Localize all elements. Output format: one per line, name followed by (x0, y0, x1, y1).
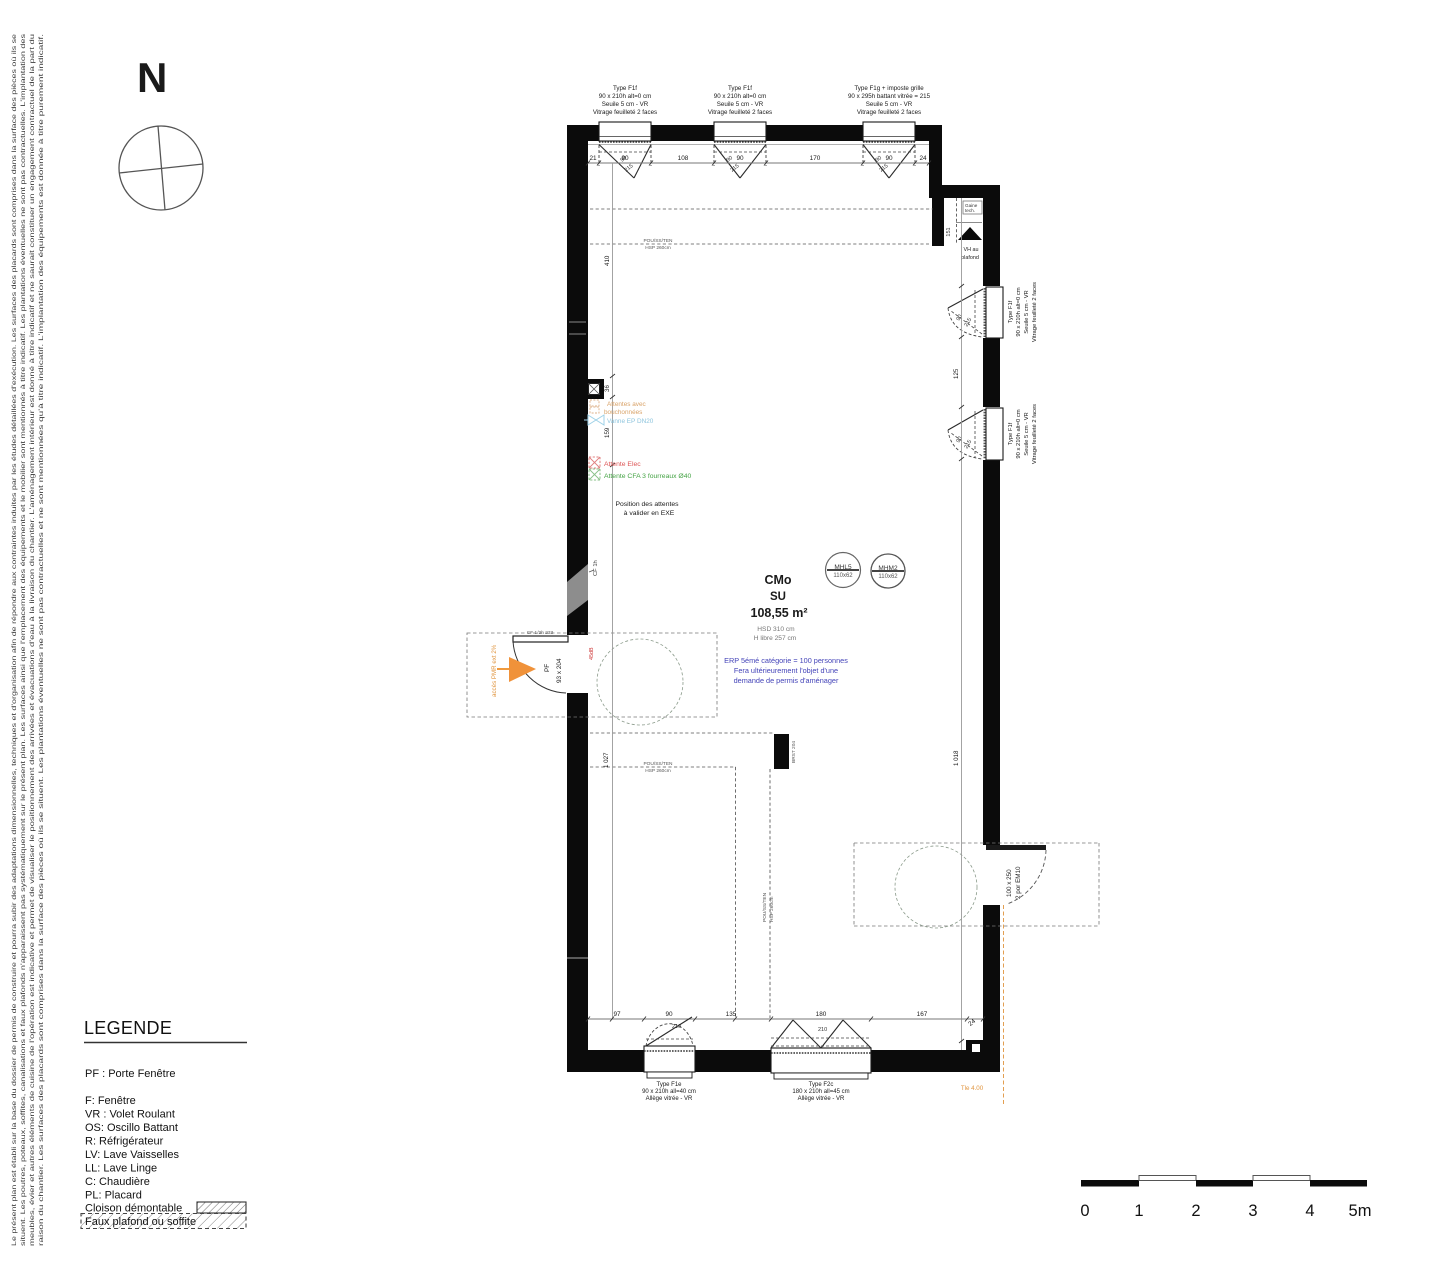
svg-text:90 x 210h alt=0 cm: 90 x 210h alt=0 cm (1016, 409, 1022, 458)
svg-text:90 x 210h all=40 cm: 90 x 210h all=40 cm (642, 1089, 696, 1095)
svg-text:Type F1e: Type F1e (656, 1082, 682, 1088)
svg-text:Seuile 5 cm - VR: Seuile 5 cm - VR (866, 101, 913, 108)
svg-text:151: 151 (946, 227, 952, 236)
svg-text:Vitrage feuilleté 2 faces: Vitrage feuilleté 2 faces (1032, 282, 1038, 342)
svg-text:3: 3 (1248, 1202, 1257, 1220)
svg-text:1 018: 1 018 (953, 750, 960, 766)
svg-text:Type F1f: Type F1f (1008, 300, 1014, 323)
svg-text:Seuile 5 cm - VR: Seuile 5 cm - VR (1024, 412, 1030, 456)
svg-text:VR : Volet Roulant: VR : Volet Roulant (85, 1109, 175, 1121)
svg-text:LV: Lave Vaisselles: LV: Lave Vaisselles (85, 1149, 179, 1161)
svg-text:45dB: 45dB (589, 647, 595, 660)
svg-text:Seuile 5 cm - VR: Seuile 5 cm - VR (602, 101, 649, 108)
svg-text:N: N (137, 54, 167, 101)
svg-text:90 x 210h alt=0 cm: 90 x 210h alt=0 cm (714, 93, 766, 100)
svg-text:Le présent plan est établi sur: Le présent plan est établi sur la base d… (11, 33, 18, 1246)
svg-text:Seuile 5 cm - VR: Seuile 5 cm - VR (1024, 290, 1030, 334)
svg-text:Vitrage feuilleté 2 faces: Vitrage feuilleté 2 faces (857, 109, 921, 116)
svg-text:R: Réfrigérateur: R: Réfrigérateur (85, 1136, 164, 1148)
svg-text:90: 90 (885, 155, 893, 162)
svg-text:4: 4 (1305, 1202, 1314, 1220)
svg-text:demande de permis d'aménager: demande de permis d'aménager (734, 676, 839, 685)
svg-text:2: 2 (1191, 1202, 1200, 1220)
svg-text:100 x 250: 100 x 250 (1006, 869, 1013, 897)
svg-text:PF: PF (544, 664, 551, 672)
svg-text:1: 1 (1134, 1202, 1143, 1220)
svg-text:Position des attentes: Position des attentes (615, 501, 679, 508)
svg-text:CMo: CMo (764, 573, 791, 587)
svg-text:Allège vitrée - VR: Allège vitrée - VR (798, 1096, 845, 1102)
svg-text:Cloison démontable: Cloison démontable (85, 1203, 182, 1215)
svg-text:LL: Lave Linge: LL: Lave Linge (85, 1163, 157, 1175)
svg-text:Fera ultérieurement l'objet d': Fera ultérieurement l'objet d'une (734, 666, 838, 675)
svg-text:plafond: plafond (961, 255, 979, 261)
svg-text:Type F1f: Type F1f (1008, 422, 1014, 445)
svg-text:raison du chantier. Les surfac: raison du chantier. Les surfaces des pla… (38, 34, 45, 1246)
svg-text:Vitrage feuilleté 2 faces: Vitrage feuilleté 2 faces (593, 109, 657, 116)
svg-text:Vanne EP DN20: Vanne EP DN20 (607, 418, 654, 425)
svg-text:Allège vitrée - VR: Allège vitrée - VR (646, 1096, 693, 1102)
svg-text:accès PMR ext 2%: accès PMR ext 2% (491, 644, 498, 697)
svg-text:LEGENDE: LEGENDE (84, 1018, 172, 1038)
svg-text:meubles, évier et autres éléme: meubles, évier et autres éléments de cui… (29, 33, 36, 1246)
svg-text:POU/SS/TEN: POU/SS/TEN (643, 238, 673, 244)
svg-text:108,55 m²: 108,55 m² (751, 606, 808, 620)
svg-text:90: 90 (665, 1011, 673, 1018)
svg-text:Attente Elec: Attente Elec (604, 461, 641, 468)
svg-text:H libre 257 cm: H libre 257 cm (754, 635, 797, 642)
svg-text:F: Fenêtre: F: Fenêtre (85, 1095, 136, 1107)
svg-text:CF 1h: CF 1h (593, 560, 599, 576)
svg-text:ERP 5émé catégorie = 100 perso: ERP 5émé catégorie = 100 personnes (724, 656, 848, 665)
svg-text:159: 159 (604, 427, 611, 438)
svg-text:HSP 260cm: HSP 260cm (645, 768, 671, 774)
svg-text:410: 410 (604, 255, 611, 266)
svg-text:Seuile 5 cm - VR: Seuile 5 cm - VR (717, 101, 764, 108)
svg-text:90: 90 (621, 155, 629, 162)
svg-text:24: 24 (919, 155, 927, 162)
svg-text:90 x 210h alt=0 cm: 90 x 210h alt=0 cm (599, 93, 651, 100)
svg-text:Vitrage feuilleté 2 faces: Vitrage feuilleté 2 faces (708, 109, 772, 116)
svg-text:SU: SU (770, 591, 786, 603)
svg-text:90 x 295h battant vitrée = 215: 90 x 295h battant vitrée = 215 (848, 93, 931, 100)
svg-text:0: 0 (1080, 1202, 1089, 1220)
svg-text:135: 135 (726, 1011, 737, 1018)
svg-text:POU/SS/TEN: POU/SS/TEN (762, 892, 768, 922)
svg-text:36: 36 (604, 385, 611, 392)
svg-text:OS: Oscillo Battant: OS: Oscillo Battant (85, 1122, 178, 1134)
svg-text:Faux plafond ou soffite: Faux plafond ou soffite (85, 1216, 196, 1228)
svg-text:1 027: 1 027 (603, 752, 610, 768)
svg-text:tech.: tech. (965, 208, 975, 213)
svg-text:5m: 5m (1349, 1202, 1372, 1220)
svg-text:HSD 310 cm: HSD 310 cm (757, 626, 795, 633)
svg-text:110x62: 110x62 (833, 573, 853, 579)
svg-text:bouchonnées: bouchonnées (604, 409, 642, 416)
svg-text:167: 167 (917, 1011, 928, 1018)
svg-text:180: 180 (816, 1011, 827, 1018)
svg-text:Type F2c: Type F2c (809, 1082, 834, 1088)
svg-text:170: 170 (810, 155, 821, 162)
svg-text:situent. Les poutres, poteaux,: situent. Les poutres, poteaux, soffites,… (20, 34, 27, 1246)
svg-text:108: 108 (678, 155, 689, 162)
svg-text:Attente CFA 3 fourreaux Ø40: Attente CFA 3 fourreaux Ø40 (604, 473, 691, 480)
svg-text:Tle 4.00: Tle 4.00 (961, 1085, 984, 1092)
svg-text:210: 210 (818, 1027, 827, 1033)
svg-text:Attentes avec: Attentes avec (607, 401, 647, 408)
svg-text:HSP 260cm: HSP 260cm (769, 896, 775, 922)
svg-text:Type F1f: Type F1f (728, 85, 752, 92)
svg-text:C: Chaudière: C: Chaudière (85, 1176, 150, 1188)
svg-text:HSP 260cm: HSP 260cm (645, 245, 671, 251)
svg-text:Vitrage feuilleté 2 faces: Vitrage feuilleté 2 faces (1032, 404, 1038, 464)
svg-text:Type F1f: Type F1f (613, 85, 637, 92)
svg-text:97: 97 (613, 1011, 621, 1018)
svg-text:110x62: 110x62 (878, 574, 898, 580)
svg-text:PF : Porte Fenêtre: PF : Porte Fenêtre (85, 1068, 175, 1080)
svg-text:210: 210 (672, 1024, 681, 1030)
svg-text:90 x 210h alt=0 cm: 90 x 210h alt=0 cm (1016, 287, 1022, 336)
svg-text:PL: Placard: PL: Placard (85, 1190, 142, 1202)
svg-text:125: 125 (953, 368, 960, 379)
svg-text:VH au: VH au (964, 247, 979, 253)
svg-text:93 x 204: 93 x 204 (556, 658, 563, 683)
svg-text:à valider en EXE: à valider en EXE (624, 510, 675, 517)
svg-text:180 x 210h all=45 cm: 180 x 210h all=45 cm (792, 1089, 849, 1095)
svg-text:BRST 204: BRST 204 (791, 741, 797, 763)
svg-text:2 por EM10: 2 por EM10 (1015, 866, 1022, 899)
svg-text:21: 21 (589, 155, 597, 162)
svg-text:Type F1g + imposte grille: Type F1g + imposte grille (854, 85, 924, 92)
svg-text:POU/SS/TEN: POU/SS/TEN (643, 761, 673, 767)
svg-text:90: 90 (736, 155, 744, 162)
